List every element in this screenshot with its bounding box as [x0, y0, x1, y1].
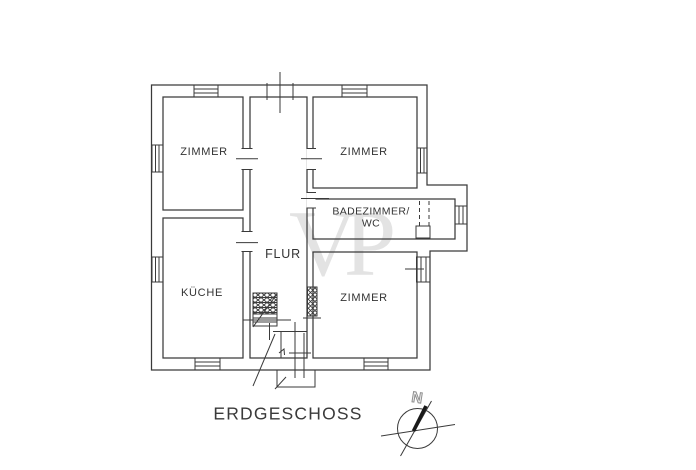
entry-door-swing: [253, 334, 275, 386]
room-label-badezimmer: BADEZIMMER/ WC: [332, 207, 409, 230]
window-top-left: [194, 85, 218, 97]
windows: [152, 85, 467, 370]
room-label-kueche: KÜCHE: [181, 287, 223, 299]
floor-plan-drawing: [0, 0, 696, 470]
outer-wall: [152, 85, 468, 370]
entry-arrow-mark: [279, 349, 285, 355]
window-extension-right: [455, 206, 467, 224]
badezimmer-line1: BADEZIMMER/: [332, 207, 409, 219]
badezimmer-line2: WC: [332, 218, 409, 230]
window-top-right: [342, 85, 367, 97]
porch-outline: [277, 370, 315, 387]
room-label-zimmer-top-left: ZIMMER: [180, 146, 228, 158]
floor-title: ERDGESCHOSS: [213, 404, 362, 425]
door-zimmer-top-right: [301, 149, 322, 170]
room-label-zimmer-bottom-right: ZIMMER: [340, 292, 388, 304]
room-label-zimmer-top-right: ZIMMER: [340, 146, 388, 158]
room-outlines: [163, 97, 455, 358]
north-arrow: [414, 406, 427, 431]
entry-area: [253, 322, 315, 389]
window-left-kueche: [152, 257, 163, 282]
window-bottom-zimmer: [364, 358, 388, 370]
compass-cross-line: [381, 425, 455, 437]
door-kueche: [236, 232, 258, 252]
door-top-entrance: [267, 72, 293, 113]
chimney: [303, 287, 321, 318]
floor-plan-page: VP: [0, 0, 696, 470]
room-outline-zimmer-bottom-right: [313, 252, 417, 358]
duct-badezimmer: [416, 201, 430, 238]
window-bottom-kueche: [195, 358, 220, 370]
room-label-flur: FLUR: [265, 247, 301, 261]
door-zimmer-top-left: [236, 149, 258, 170]
window-left-zimmer: [152, 145, 163, 172]
compass-icon: [381, 401, 455, 456]
door-badezimmer: [301, 193, 329, 209]
room-outline-zimmer-top-right: [313, 97, 417, 188]
window-right-zimmer-top: [417, 148, 427, 173]
